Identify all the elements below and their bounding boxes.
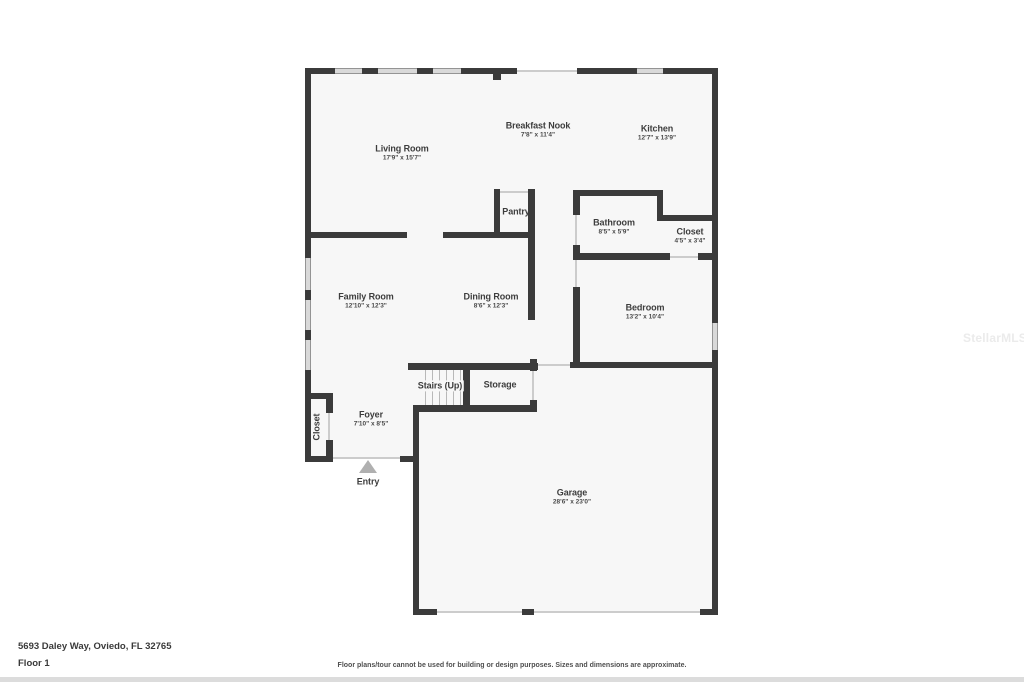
window-top-3 xyxy=(433,68,461,74)
wall-storage-right xyxy=(530,359,537,371)
room-name: Kitchen xyxy=(638,123,676,134)
wall-living-divider xyxy=(443,232,535,238)
room-dims: 17'9" x 15'7" xyxy=(375,155,428,163)
room-dims: 8'6" x 12'3" xyxy=(464,303,519,311)
room-label-stairs: Stairs (Up) xyxy=(416,380,464,391)
wall-garage-left xyxy=(413,405,419,615)
wall-bedroom-bottom xyxy=(570,362,718,368)
room-label-breakfast-nook: Breakfast Nook 7'8" x 11'4" xyxy=(506,120,571,139)
room-label-living-room: Living Room 17'9" x 15'7" xyxy=(375,143,428,162)
opening-top xyxy=(517,70,577,72)
wall-bathroom-top xyxy=(573,190,663,196)
wall-top xyxy=(577,68,637,74)
window-top-1 xyxy=(335,68,362,74)
bedroom-door-opening xyxy=(575,260,577,287)
room-label-pantry: Pantry xyxy=(502,206,529,217)
wall-stairs-top xyxy=(408,363,538,370)
floor-plan-page: Living Room 17'9" x 15'7" Breakfast Nook… xyxy=(0,0,1024,682)
wall-stub-top xyxy=(493,74,501,80)
window-right-1 xyxy=(712,323,718,350)
mls-watermark: StellarMLS xyxy=(963,331,1024,345)
entry-opening xyxy=(333,457,400,459)
room-dims: 28'6" x 23'0" xyxy=(553,499,591,507)
room-dims: 13'2" x 10'4" xyxy=(626,314,665,322)
room-dims: 4'5" x 3'4" xyxy=(675,238,706,246)
room-name: Family Room xyxy=(338,291,393,302)
wall-foyer-bottom xyxy=(305,456,333,462)
wall-bedroom-left xyxy=(573,287,580,368)
wall-garage-bottom xyxy=(700,609,718,615)
pantry-door-opening xyxy=(500,191,528,193)
wall-pantry-left xyxy=(494,189,500,238)
wall-top xyxy=(417,68,433,74)
wall-right xyxy=(712,350,718,615)
wall-bathroom-bottom xyxy=(573,253,670,260)
wall-garage-bottom xyxy=(522,609,534,615)
wall-left xyxy=(305,370,311,462)
room-label-entry: Entry xyxy=(357,476,380,487)
wall-stairs-bottom xyxy=(413,405,535,412)
room-dims: 7'10" x 8'5" xyxy=(354,421,389,429)
room-label-foyer-closet: Closet xyxy=(311,414,322,441)
wall-top xyxy=(362,68,378,74)
room-label-foyer: Foyer 7'10" x 8'5" xyxy=(354,409,389,428)
window-top-2 xyxy=(378,68,417,74)
wall-left xyxy=(305,68,311,258)
room-name: Pantry xyxy=(502,206,529,217)
room-label-kitchen: Kitchen 12'7" x 13'9" xyxy=(638,123,676,142)
window-top-4 xyxy=(637,68,663,74)
room-dims: 7'8" x 11'4" xyxy=(506,132,571,140)
floor-number-label: Floor 1 xyxy=(18,658,50,669)
wall-bathroom-left xyxy=(573,190,580,215)
room-label-family-room: Family Room 12'10" x 12'3" xyxy=(338,291,393,310)
wall-right xyxy=(712,68,718,323)
room-name: Stairs (Up) xyxy=(416,380,464,391)
window-left-1 xyxy=(305,258,311,290)
room-label-storage: Storage xyxy=(484,379,517,390)
wall-left xyxy=(305,290,311,300)
wall-top xyxy=(461,68,517,74)
property-address: 5693 Daley Way, Oviedo, FL 32765 xyxy=(18,641,172,652)
room-name: Closet xyxy=(675,226,706,237)
room-name: Foyer xyxy=(354,409,389,420)
room-name: Entry xyxy=(357,476,380,487)
room-name: Garage xyxy=(553,487,591,498)
room-label-dining-room: Dining Room 8'6" x 12'3" xyxy=(464,291,519,310)
entry-arrow-icon xyxy=(359,460,377,473)
room-name: Breakfast Nook xyxy=(506,120,571,131)
foyer-closet-door-opening xyxy=(328,413,330,440)
bottom-divider-bar xyxy=(0,677,1024,682)
room-label-garage: Garage 28'6" x 23'0" xyxy=(553,487,591,506)
room-name: Dining Room xyxy=(464,291,519,302)
wall-bath-closet-top xyxy=(657,215,718,221)
bath-closet-door-opening xyxy=(670,256,698,258)
room-name: Bathroom xyxy=(593,217,635,228)
bathroom-door-opening xyxy=(575,215,577,245)
wall-storage-right xyxy=(530,400,537,412)
garage-door-opening-1 xyxy=(437,611,522,613)
room-dims: 12'10" x 12'3" xyxy=(338,303,393,311)
room-name: Storage xyxy=(484,379,517,390)
wall-foyer-bottom xyxy=(400,456,419,462)
wall-bathroom-bottom xyxy=(698,253,718,260)
room-label-bathroom: Bathroom 8'5" x 5'9" xyxy=(593,217,635,236)
window-left-2 xyxy=(305,300,311,330)
room-label-bedroom: Bedroom 13'2" x 10'4" xyxy=(626,302,665,321)
room-name: Bedroom xyxy=(626,302,665,313)
room-name: Closet xyxy=(311,414,322,441)
wall-living-divider xyxy=(305,232,407,238)
room-dims: 8'5" x 5'9" xyxy=(593,229,635,237)
wall-left xyxy=(305,330,311,340)
room-dims: 12'7" x 13'9" xyxy=(638,135,676,143)
disclaimer-text: Floor plans/tour cannot be used for buil… xyxy=(338,662,687,669)
wall-top xyxy=(663,68,718,74)
room-name: Living Room xyxy=(375,143,428,154)
window-left-3 xyxy=(305,340,311,370)
storage-door-opening xyxy=(532,371,534,400)
hall-garage-door-opening xyxy=(538,364,570,366)
garage-door-opening-2 xyxy=(534,611,700,613)
room-label-bath-closet: Closet 4'5" x 3'4" xyxy=(675,226,706,245)
wall-foyer-closet-right xyxy=(326,393,333,413)
